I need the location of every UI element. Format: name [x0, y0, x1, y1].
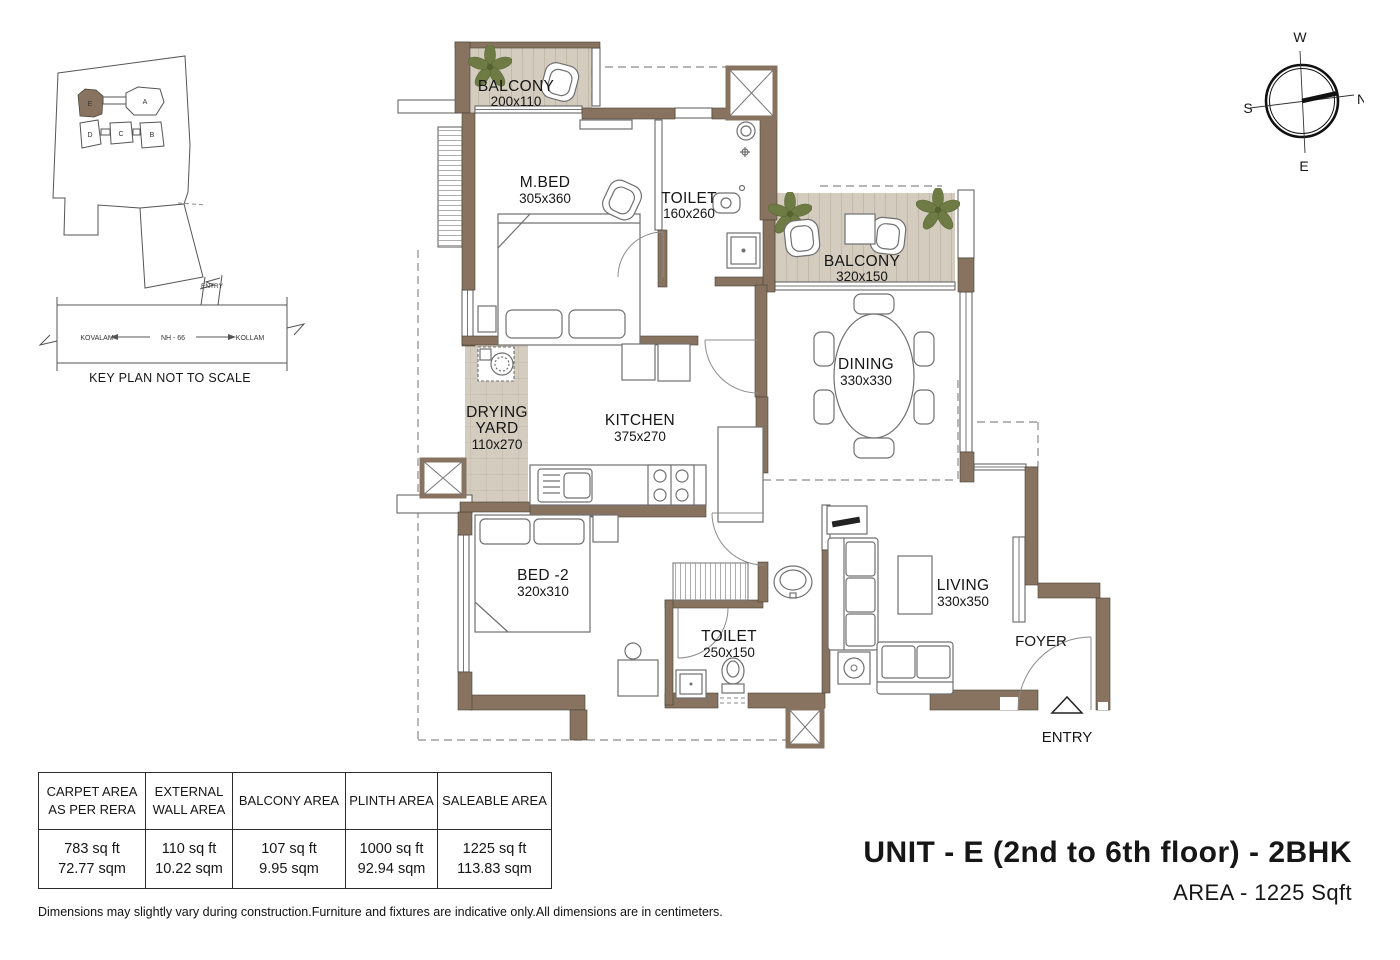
header-external-wall: EXTERNAL WALL AREA [146, 773, 233, 829]
label-bed2: BED -2 [517, 567, 569, 584]
header-text: BALCONY AREA [239, 792, 339, 810]
value-sqm: 92.94 sqm [358, 859, 426, 879]
dims-balcony-right: 320x150 [836, 269, 888, 284]
site-boundary [53, 56, 222, 305]
header-saleable-area: SALEABLE AREA [438, 773, 551, 829]
value-plinth-area: 1000 sq ft 92.94 sqm [346, 830, 438, 888]
building-d-label: D [87, 132, 92, 139]
label-balcony-right: BALCONY [824, 253, 900, 270]
value-balcony-area: 107 sq ft 9.95 sqm [233, 830, 346, 888]
value-sqft: 107 sq ft [261, 839, 317, 859]
road-right-city: KOLLAM [236, 335, 265, 342]
value-sqm: 9.95 sqm [259, 859, 319, 879]
dims-master-bed: 305x360 [519, 191, 571, 206]
value-sqm: 113.83 sqm [457, 859, 532, 879]
compass-s: S [1243, 100, 1252, 116]
key-plan: E A D C B ENTRY KOVALAM NH - 66 KOLLAM K… [38, 45, 308, 395]
dims-kitchen: 375x270 [614, 429, 666, 444]
dims-drying: 110x270 [472, 437, 523, 452]
key-plan-entry-label: ENTRY [201, 283, 224, 290]
arrow-right-icon [228, 334, 236, 340]
label-living: LIVING [937, 577, 990, 594]
label-drying-2: YARD [475, 420, 518, 437]
header-carpet-area: CARPET AREA AS PER RERA [39, 773, 146, 829]
dims-balcony-top: 200x110 [491, 94, 542, 109]
value-sqm: 72.77 sqm [58, 859, 126, 879]
label-balcony-top: BALCONY [478, 78, 554, 95]
building-b-label: B [150, 132, 155, 139]
label-master-bed: M.BED [520, 174, 571, 191]
area-table-header-row: CARPET AREA AS PER RERA EXTERNAL WALL AR… [39, 773, 551, 830]
master-bed-furniture [478, 120, 645, 345]
compass-e: E [1299, 158, 1308, 174]
key-plan-buildings: E A D C B [78, 87, 164, 148]
label-kitchen: KITCHEN [605, 412, 675, 429]
title-block: UNIT - E (2nd to 6th floor) - 2BHK AREA … [863, 836, 1352, 906]
value-external-wall: 110 sq ft 10.22 sqm [146, 830, 233, 888]
compass-n: N [1357, 91, 1364, 107]
dims-living: 330x350 [937, 594, 989, 609]
door-sill [1000, 697, 1018, 710]
header-text: PLINTH AREA [349, 792, 434, 810]
header-balcony-area: BALCONY AREA [233, 773, 346, 829]
value-carpet-area: 783 sq ft 72.77 sqm [39, 830, 146, 888]
area-table: CARPET AREA AS PER RERA EXTERNAL WALL AR… [38, 772, 552, 889]
label-drying-1: DRYING [466, 404, 528, 421]
dims-toilet-top: 160x260 [663, 206, 715, 221]
label-foyer: FOYER [1015, 633, 1067, 650]
compass-w: W [1293, 29, 1307, 45]
unit-area: AREA - 1225 Sqft [863, 880, 1352, 906]
unit-title: UNIT - E (2nd to 6th floor) - 2BHK [863, 836, 1352, 870]
armchair-icon [783, 218, 821, 257]
value-sqft: 1000 sq ft [360, 839, 424, 859]
road-highway-label: NH - 66 [161, 335, 185, 342]
compass-rose: W N S E [1240, 24, 1364, 174]
door-sill [1098, 702, 1108, 710]
compass-needle-icon [1302, 93, 1338, 101]
living-furniture [827, 506, 1091, 713]
value-sqft: 783 sq ft [64, 839, 120, 859]
header-text: EXTERNAL [155, 783, 224, 801]
floor-plan: BALCONY 200x110 M.BED 305x360 TOILET 160… [390, 10, 1120, 770]
dims-dining: 330x330 [840, 373, 892, 388]
header-text: AS PER RERA [48, 801, 135, 819]
label-toilet-top: TOILET [661, 190, 717, 207]
header-text: SALEABLE AREA [442, 792, 547, 810]
dims-bed2: 320x310 [517, 584, 569, 599]
label-toilet-bottom: TOILET [701, 628, 757, 645]
entry-arrow-icon [1052, 697, 1082, 713]
road-left-city: KOVALAM [80, 335, 113, 342]
value-sqft: 110 sq ft [162, 839, 217, 859]
value-saleable-area: 1225 sq ft 113.83 sqm [438, 830, 551, 888]
label-entry: ENTRY [1042, 729, 1093, 746]
disclaimer-footnote: Dimensions may slightly vary during cons… [38, 905, 723, 919]
value-sqft: 1225 sq ft [463, 839, 527, 859]
value-sqm: 10.22 sqm [155, 859, 223, 879]
walls [455, 42, 1110, 740]
highway-road: KOVALAM NH - 66 KOLLAM [40, 297, 304, 371]
building-a-label: A [143, 99, 148, 106]
drying-yard-fixtures [478, 347, 514, 381]
floor-plan-sheet: E A D C B ENTRY KOVALAM NH - 66 KOLLAM K… [0, 0, 1400, 960]
area-table-value-row: 783 sq ft 72.77 sqm 110 sq ft 10.22 sqm … [39, 830, 551, 888]
building-c-label: C [118, 131, 123, 138]
key-plan-caption: KEY PLAN NOT TO SCALE [89, 371, 251, 385]
room-labels: BALCONY 200x110 M.BED 305x360 TOILET 160… [466, 78, 1092, 746]
header-text: CARPET AREA [47, 783, 138, 801]
header-text: WALL AREA [153, 801, 226, 819]
label-dining: DINING [838, 356, 894, 373]
building-e-label: E [88, 101, 93, 108]
header-plinth-area: PLINTH AREA [346, 773, 438, 829]
dims-toilet-bottom: 250x150 [703, 645, 755, 660]
